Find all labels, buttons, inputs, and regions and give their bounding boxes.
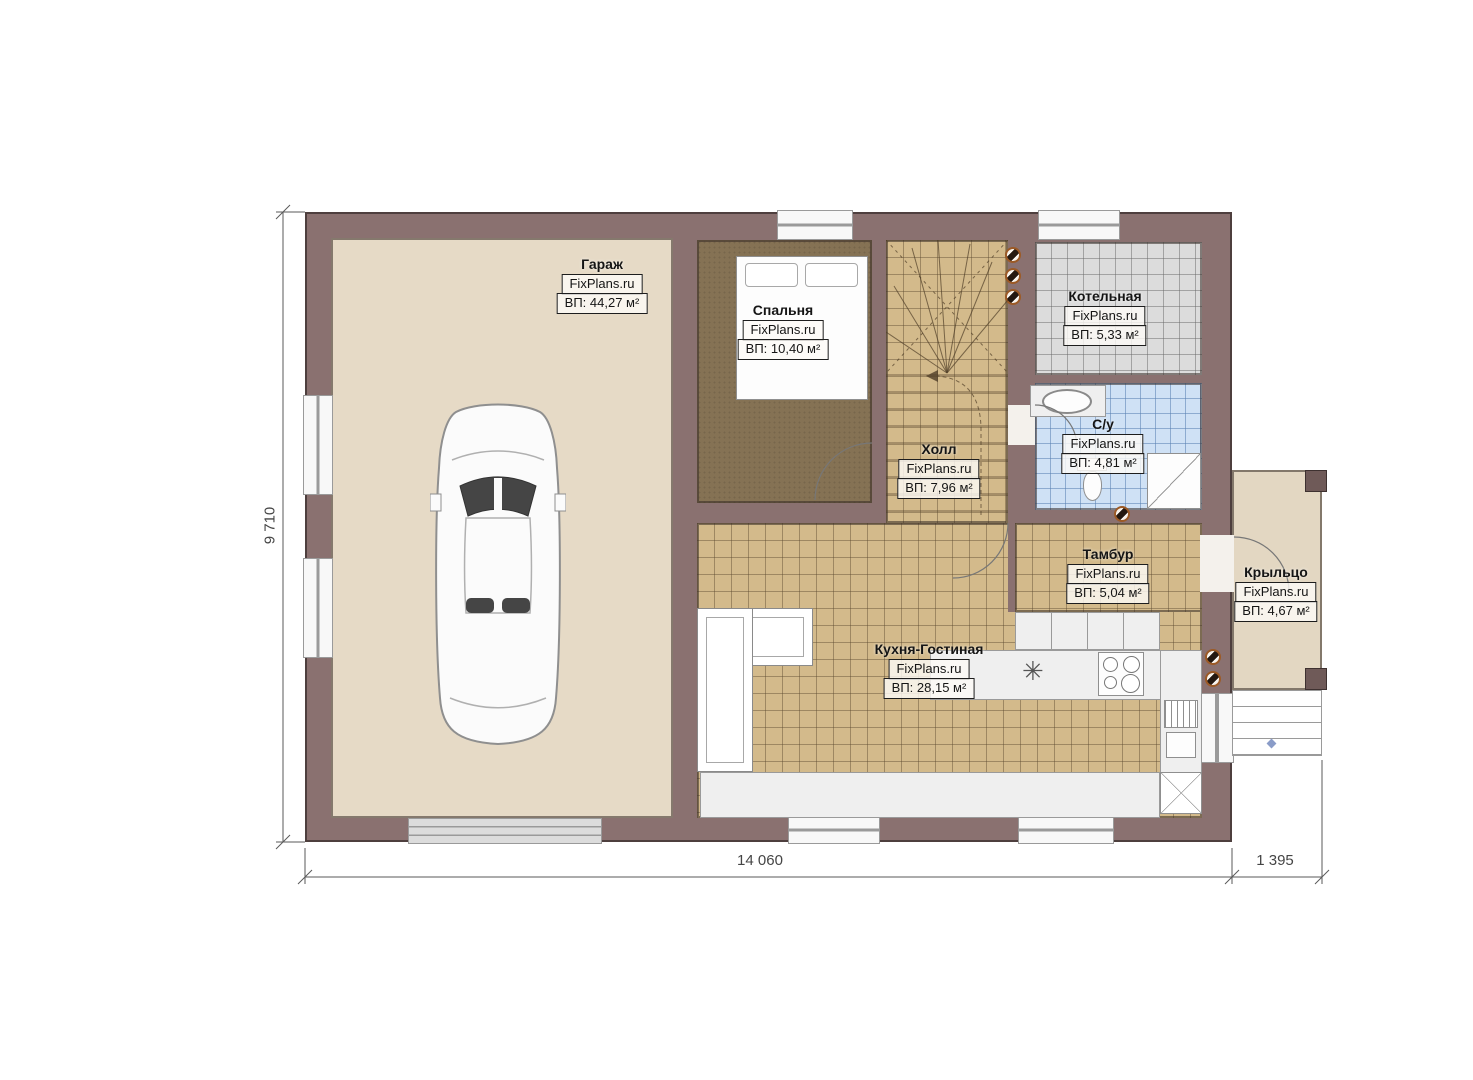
room-name: Кухня-Гостиная (875, 641, 984, 657)
brand-watermark: FixPlans.ru (1062, 434, 1143, 455)
room-name: Тамбур (1083, 546, 1134, 562)
window-kitchen-bottom-2 (1018, 816, 1114, 844)
brand-watermark: FixPlans.ru (1235, 582, 1316, 603)
dimension-left-height: 9 710 (262, 486, 279, 566)
brand-watermark: FixPlans.ru (898, 459, 979, 480)
room-label-garage: Гараж FixPlans.ru ВП: 44,27 м² (557, 256, 648, 314)
vestibule-cabinets (1015, 612, 1160, 650)
toilet-bowl (1083, 471, 1102, 501)
room-name: Холл (921, 441, 956, 457)
burner-icon (1123, 656, 1140, 673)
fridge-unit (1160, 772, 1202, 814)
room-label-kitchen-living: Кухня-Гостиная FixPlans.ru ВП: 28,15 м² (875, 641, 984, 699)
floor-plan-canvas: ✳ (0, 0, 1473, 1080)
window-boiler-top (1038, 210, 1120, 240)
kitchen-appliance-vent (1164, 700, 1198, 728)
brand-watermark: FixPlans.ru (1064, 306, 1145, 327)
room-area: ВП: 5,04 м² (1066, 583, 1149, 604)
brand-watermark: FixPlans.ru (561, 274, 642, 295)
vestibule-left-wall (1008, 523, 1015, 612)
room-area: ВП: 7,96 м² (897, 478, 980, 499)
burner-icon (1103, 657, 1118, 672)
pillow (805, 263, 858, 287)
vent-icon (1114, 506, 1130, 522)
kitchen-counter-bottom (700, 772, 1160, 818)
vent-icon (1005, 289, 1021, 305)
brand-watermark: FixPlans.ru (888, 659, 969, 680)
room-label-boiler: Котельная FixPlans.ru ВП: 5,33 м² (1063, 288, 1146, 346)
window-garage-left-2 (303, 558, 333, 658)
room-area: ВП: 44,27 м² (557, 293, 648, 314)
vent-icon (1005, 268, 1021, 284)
room-name: С/у (1092, 416, 1114, 432)
room-area: ВП: 10,40 м² (738, 339, 829, 360)
room-label-bathroom: С/у FixPlans.ru ВП: 4,81 м² (1061, 416, 1144, 474)
entrance-door-opening (1200, 535, 1234, 592)
room-name: Котельная (1068, 288, 1141, 304)
porch-steps (1232, 690, 1322, 756)
burner-icon (1121, 674, 1140, 693)
washbasin (1042, 389, 1092, 414)
kitchen-sink-icon: ✳ (1022, 658, 1044, 684)
burner-icon (1104, 676, 1117, 689)
window-kitchen-right (1200, 693, 1234, 763)
dimension-bottom-main: 14 060 (695, 852, 825, 869)
room-area: ВП: 5,33 м² (1063, 325, 1146, 346)
brand-watermark: FixPlans.ru (742, 320, 823, 341)
brand-watermark: FixPlans.ru (1067, 564, 1148, 585)
room-label-hall: Холл FixPlans.ru ВП: 7,96 м² (897, 441, 980, 499)
room-label-vestibule: Тамбур FixPlans.ru ВП: 5,04 м² (1066, 546, 1149, 604)
stove (1098, 652, 1144, 696)
sofa-vertical-arm (697, 608, 753, 772)
room-name: Крыльцо (1244, 564, 1308, 580)
window-garage-left-1 (303, 395, 333, 495)
window-kitchen-bottom-1 (788, 816, 880, 844)
room-name: Спальня (753, 302, 813, 318)
vent-icon (1205, 649, 1221, 665)
car-illustration (430, 398, 566, 748)
shower-tray (1147, 453, 1201, 509)
room-area: ВП: 4,81 м² (1061, 453, 1144, 474)
vent-icon (1005, 247, 1021, 263)
window-bedroom-top (777, 210, 853, 240)
oven (1166, 732, 1196, 758)
room-name: Гараж (581, 256, 623, 272)
room-label-porch: Крыльцо FixPlans.ru ВП: 4,67 м² (1234, 564, 1317, 622)
room-area: ВП: 4,67 м² (1234, 601, 1317, 622)
dimension-bottom-porch: 1 395 (1235, 852, 1315, 869)
pillow (745, 263, 798, 287)
room-label-bedroom: Спальня FixPlans.ru ВП: 10,40 м² (738, 302, 829, 360)
porch-column (1305, 668, 1327, 690)
vent-icon (1205, 671, 1221, 687)
garage-door (408, 818, 602, 844)
room-area: ВП: 28,15 м² (884, 678, 975, 699)
porch-column (1305, 470, 1327, 492)
